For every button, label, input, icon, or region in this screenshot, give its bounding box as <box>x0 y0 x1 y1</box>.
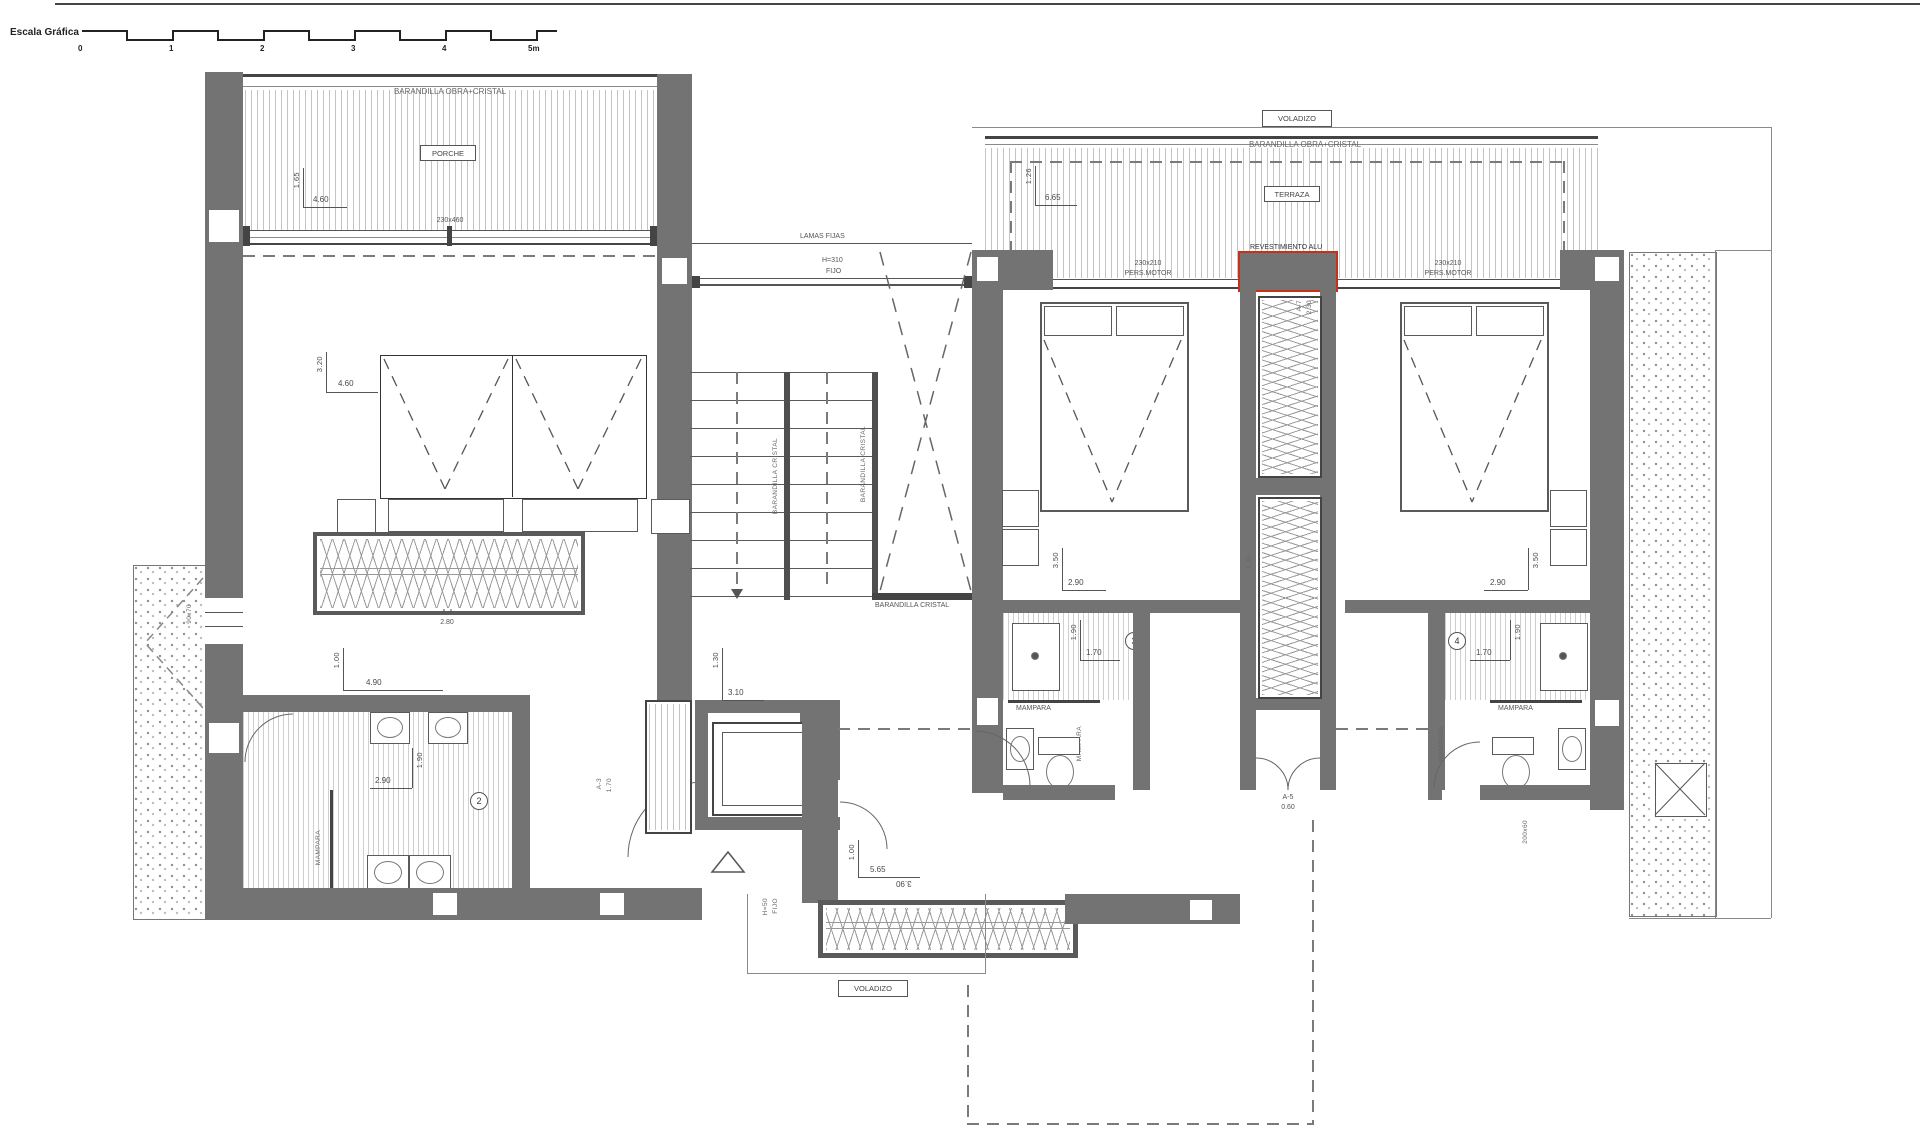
lift-dim-v: 1.30 <box>711 652 720 668</box>
toilet-bowl <box>1502 755 1530 789</box>
dim-line <box>1470 660 1510 661</box>
wall-notch <box>1595 257 1619 281</box>
nightstand <box>651 499 690 534</box>
porch-room-label: PORCHE <box>420 145 476 161</box>
window-jamb <box>650 226 657 246</box>
porch-dim-v: 1.65 <box>292 172 301 188</box>
window-mullion <box>447 226 452 246</box>
shaft-window-ref: A-7 <box>1296 300 1303 311</box>
void-edge <box>872 593 975 600</box>
bath3-screen-label: MAMPARA <box>1016 705 1051 713</box>
wall-notch <box>977 257 998 281</box>
bath2-dim-h: 2.90 <box>375 776 391 785</box>
door-arc <box>1432 740 1482 790</box>
room-number-2: 2 <box>470 792 488 810</box>
bed3-dashes <box>1040 302 1185 508</box>
overhang-line <box>972 127 1772 128</box>
toilet-tank <box>1038 737 1080 755</box>
door-arc <box>1286 756 1322 792</box>
window-sill <box>1053 279 1240 280</box>
lift-wall <box>695 700 708 830</box>
dim-line <box>343 690 443 691</box>
nightstand <box>1550 529 1587 566</box>
dim-line <box>858 840 859 877</box>
bath4-screen-line <box>1490 700 1582 703</box>
porch-dim-h: 4.60 <box>313 195 329 204</box>
scale-bar <box>80 27 550 43</box>
door-arc <box>1254 756 1290 792</box>
entry-window <box>818 900 1078 958</box>
scale-bar-title: Escala Gráfica <box>10 28 79 37</box>
wall-notch <box>209 210 239 242</box>
voladizo-label-bottom: VOLADIZO <box>838 980 908 997</box>
shutter3-type: PERS.MOTOR <box>1125 270 1172 278</box>
toilet-bowl <box>377 717 403 738</box>
overhang-line <box>747 894 748 974</box>
entry-window-h: H=50 <box>762 898 769 915</box>
projection-dashed <box>1312 820 1314 1125</box>
terrace-room-label: TERRAZA <box>1264 186 1320 202</box>
wall-bath4-south <box>1480 785 1624 800</box>
bidet-bowl <box>435 717 461 738</box>
entry-dim-flip: 3.90 <box>896 879 912 888</box>
toilet-bowl <box>1046 755 1074 789</box>
window-a3-ref: A-3 <box>596 778 603 789</box>
window-a4-ref: A-4 <box>442 609 453 617</box>
top-rule <box>55 3 1920 5</box>
terrace-dim-v: 1.26 <box>1024 168 1033 184</box>
overhang-line <box>1629 918 1771 919</box>
overhang-line <box>747 973 986 974</box>
wall-notch <box>433 893 457 915</box>
wall-notch <box>1595 700 1619 726</box>
terrace-dashed <box>1010 161 1565 163</box>
master-bed-dashes <box>380 355 645 497</box>
window-a3 <box>645 700 692 834</box>
lift-car <box>712 722 816 816</box>
shaft-wall-low <box>1240 698 1336 710</box>
toilet-tank <box>1492 737 1534 755</box>
wall-notch <box>600 893 624 915</box>
shaft-door-ref: A-5 <box>1283 794 1294 802</box>
stair-arrow-icon <box>731 589 743 599</box>
terrace-railing-label: BARANDILLA OBRA+CRISTAL <box>1249 140 1361 149</box>
clad-wall-highlight <box>1238 251 1338 292</box>
dim-line <box>722 648 723 700</box>
void-rail-label: BARANDILLA CRISTAL <box>875 602 949 610</box>
wall-east <box>1590 250 1624 810</box>
bed4-dim-v: 3.50 <box>1531 552 1540 568</box>
dim-line <box>1035 166 1036 206</box>
bath4-screen-label: MAMPARA <box>1498 705 1533 713</box>
projection-dashed <box>967 1123 1314 1125</box>
bath3-dim-h: 1.70 <box>1086 648 1102 657</box>
louvre-jamb <box>692 276 700 288</box>
entry-dim-v: 1.00 <box>847 844 856 860</box>
master-dim2-h: 4.90 <box>366 678 382 687</box>
overhang-line <box>1771 127 1772 918</box>
sink-basin <box>416 861 444 884</box>
shaft-window-size: 2.30 <box>1306 300 1313 314</box>
master-dim-h: 4.60 <box>338 379 354 388</box>
dim-line <box>303 168 304 208</box>
porch-parapet <box>243 74 692 77</box>
window-a4-size: 2.80 <box>440 619 454 627</box>
window-jamb <box>243 226 250 246</box>
stair-rail <box>784 372 790 600</box>
porch-boundary-dashed <box>243 255 657 257</box>
bed3-dim-v: 3.50 <box>1051 552 1060 568</box>
scale-tick: 5m <box>528 44 540 53</box>
master-dim-v: 3.20 <box>315 356 324 372</box>
wall-bed4-south <box>1345 600 1590 613</box>
shaft-window2-size: 2.30 <box>1246 555 1253 569</box>
shutter3-size: 230x210 <box>1135 260 1162 268</box>
dim-line <box>1035 205 1077 206</box>
drain <box>1559 652 1567 660</box>
scale-tick: 4 <box>442 44 446 53</box>
scale-tick: 3 <box>351 44 355 53</box>
dim-line <box>412 748 413 788</box>
terrace-parapet <box>985 136 1598 139</box>
lift-dim-h: 3.10 <box>728 688 744 697</box>
west-dashed-door <box>138 575 208 715</box>
overhang-line <box>1715 250 1771 251</box>
window-line <box>205 612 243 613</box>
void-x <box>878 250 973 593</box>
wall-notch <box>662 258 687 284</box>
chimney-x-icon <box>1655 763 1705 815</box>
overhang-line <box>985 894 986 974</box>
dim-line <box>326 352 327 392</box>
scale-tick: 1 <box>169 44 173 53</box>
corridor-dashed <box>1336 728 1428 730</box>
window-sill <box>1336 279 1560 280</box>
headboard <box>522 499 638 532</box>
room-number-4: 4 <box>1448 632 1466 650</box>
louvre-window-type: FIJO <box>826 268 841 276</box>
scale-tick: 0 <box>78 44 82 53</box>
louvre-window-h: H=310 <box>822 257 843 265</box>
wall-bed3-north <box>1003 250 1053 290</box>
window-line <box>205 626 243 627</box>
dim-line <box>1080 620 1081 660</box>
east-window-size: 200x60 <box>1522 820 1529 844</box>
wall-bath3-east <box>1133 613 1150 790</box>
stair-rail-label: BARANDILLA CRISTAL <box>772 438 779 514</box>
stair-rail-label: BARANDILLA CRISTAL <box>860 426 867 502</box>
stair-walkline <box>826 372 828 590</box>
bath2-screen-label: MAMPARA <box>315 830 322 865</box>
window-a3-size: 1.70 <box>606 778 613 792</box>
louvres-label: LAMAS FIJAS <box>800 233 845 241</box>
door-arc <box>243 712 303 772</box>
louvre-line <box>692 243 972 244</box>
shaft-window-a7 <box>1258 296 1322 478</box>
bed4-dashes <box>1400 302 1545 508</box>
door-arc <box>973 729 1033 789</box>
scale-tick: 2 <box>260 44 264 53</box>
wall-notch <box>209 723 239 753</box>
dim-line <box>370 788 412 789</box>
corridor-dashed <box>838 728 972 730</box>
bath2-screen <box>330 790 333 888</box>
drain <box>1031 652 1039 660</box>
nightstand <box>1002 529 1039 566</box>
projection-dashed <box>967 985 969 1125</box>
entry-window-type: FIJO <box>772 898 779 914</box>
shutter4-type: PERS.MOTOR <box>1425 270 1472 278</box>
window-sill <box>1336 287 1560 289</box>
shaft-door-size: 0.60 <box>1281 804 1295 812</box>
entry-arrow-icon <box>710 850 746 874</box>
wall-notch <box>977 698 998 725</box>
dim-line <box>858 877 920 878</box>
dim-line <box>1484 590 1528 591</box>
wall-bath2-east <box>512 712 530 890</box>
dim-line <box>1528 548 1529 590</box>
wall-south-center <box>1065 894 1240 924</box>
wall-bed3-south <box>1003 600 1240 613</box>
sink-basin <box>374 861 402 884</box>
shaft-wall-east <box>1320 290 1336 790</box>
shaft-window-low <box>1258 497 1322 699</box>
bath3-screen-line <box>1008 700 1100 703</box>
dim-line <box>1080 660 1120 661</box>
dim-line <box>722 700 764 701</box>
wall-notch <box>1190 900 1212 920</box>
nightstand <box>337 499 376 534</box>
entry-dim-h: 5.65 <box>870 865 886 874</box>
shaft-wall-mid <box>1240 478 1336 495</box>
headboard <box>388 499 504 532</box>
shaft-wall-west <box>1240 290 1256 790</box>
master-dim2-v: 1.00 <box>332 652 341 668</box>
terrace-dim-h: 6.65 <box>1045 193 1061 202</box>
wall-stair-west <box>657 74 692 700</box>
stair-walkline <box>736 372 738 590</box>
side-terrace-east <box>1629 252 1717 917</box>
bath2-dim-v: 1.90 <box>415 752 424 768</box>
dim-line <box>343 648 344 690</box>
bed3-dim-h: 2.90 <box>1068 578 1084 587</box>
shutter4-size: 230x210 <box>1435 260 1462 268</box>
window-sill <box>1053 287 1240 289</box>
bath4-dim-h: 1.70 <box>1476 648 1492 657</box>
dim-line <box>326 392 378 393</box>
bath3-dim-v: 1.90 <box>1069 624 1078 640</box>
sink-basin <box>1562 736 1582 762</box>
wall-bath2-north <box>205 695 530 712</box>
porch-railing-label: BARANDILLA OBRA+CRISTAL <box>394 87 506 96</box>
bed4-dim-h: 2.90 <box>1490 578 1506 587</box>
voladizo-label-top: VOLADIZO <box>1262 110 1332 127</box>
nightstand <box>1550 490 1587 527</box>
dim-line <box>1510 620 1511 660</box>
bath4-dim-v: 1.90 <box>1513 624 1522 640</box>
bath2-window-size: 90x70 <box>186 604 193 624</box>
wall-west <box>205 72 243 902</box>
dim-line <box>1062 590 1106 591</box>
wall-hall-west <box>802 712 838 903</box>
floor-plan: Escala Gráfica 0 1 2 3 4 5m BARANDILLA O… <box>0 0 1920 1140</box>
window-a4 <box>313 532 585 615</box>
nightstand <box>1002 490 1039 527</box>
porch-window-size: 230x460 <box>437 217 464 225</box>
window-90x70-gap <box>205 598 243 644</box>
dim-line <box>1062 548 1063 590</box>
dim-line <box>303 207 347 208</box>
